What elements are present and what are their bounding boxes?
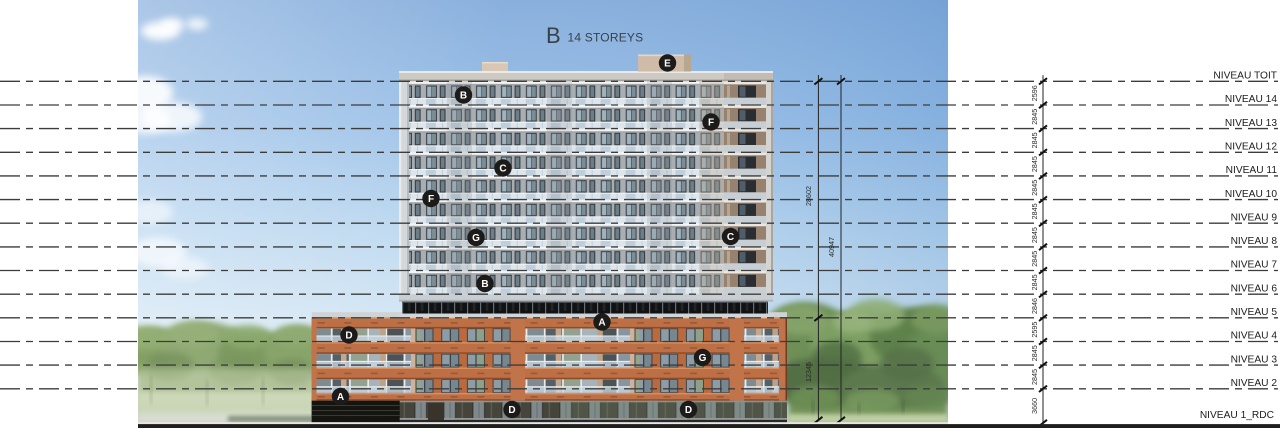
svg-text:G: G — [699, 353, 707, 364]
svg-text:NIVEAU 2: NIVEAU 2 — [1231, 378, 1278, 389]
svg-text:3660: 3660 — [1030, 398, 1039, 414]
svg-text:D: D — [685, 405, 692, 416]
svg-text:NIVEAU 6: NIVEAU 6 — [1231, 283, 1278, 294]
svg-text:NIVEAU 8: NIVEAU 8 — [1231, 236, 1278, 247]
svg-text:2596: 2596 — [1030, 85, 1039, 101]
svg-text:NIVEAU 3: NIVEAU 3 — [1231, 354, 1278, 365]
svg-text:2845: 2845 — [1030, 132, 1039, 148]
svg-text:2845: 2845 — [1030, 345, 1039, 361]
svg-text:40947: 40947 — [827, 237, 836, 257]
svg-text:2846: 2846 — [1030, 298, 1039, 314]
svg-text:NIVEAU 1_RDC: NIVEAU 1_RDC — [1200, 410, 1274, 421]
svg-text:B: B — [481, 279, 488, 290]
svg-text:D: D — [345, 330, 352, 341]
svg-text:NIVEAU 10: NIVEAU 10 — [1225, 189, 1277, 200]
svg-text:2845: 2845 — [1030, 274, 1039, 290]
svg-text:NIVEAU 4: NIVEAU 4 — [1231, 331, 1278, 342]
svg-text:F: F — [428, 194, 434, 205]
svg-text:C: C — [499, 163, 506, 174]
svg-text:NIVEAU 5: NIVEAU 5 — [1231, 307, 1278, 318]
svg-text:D: D — [508, 405, 515, 416]
svg-text:NIVEAU 12: NIVEAU 12 — [1225, 142, 1277, 153]
svg-text:2845: 2845 — [1030, 203, 1039, 219]
svg-text:NIVEAU 11: NIVEAU 11 — [1226, 165, 1278, 176]
svg-text:B: B — [546, 23, 561, 48]
svg-text:2845: 2845 — [1030, 251, 1039, 267]
svg-text:C: C — [727, 232, 734, 243]
svg-text:B: B — [460, 90, 467, 101]
svg-text:A: A — [337, 392, 344, 403]
svg-text:2845: 2845 — [1030, 227, 1039, 243]
svg-text:28602: 28602 — [804, 186, 813, 206]
svg-text:NIVEAU 13: NIVEAU 13 — [1225, 118, 1277, 129]
svg-text:2845: 2845 — [1030, 369, 1039, 385]
svg-text:F: F — [708, 117, 714, 128]
svg-text:NIVEAU 14: NIVEAU 14 — [1225, 94, 1277, 105]
svg-text:NIVEAU 9: NIVEAU 9 — [1231, 212, 1278, 223]
svg-text:E: E — [664, 58, 671, 69]
svg-text:NIVEAU TOIT: NIVEAU TOIT — [1213, 71, 1277, 82]
svg-text:2845: 2845 — [1030, 180, 1039, 196]
svg-text:2845: 2845 — [1030, 156, 1039, 172]
svg-text:A: A — [598, 317, 605, 328]
svg-text:NIVEAU 7: NIVEAU 7 — [1231, 260, 1278, 271]
svg-text:G: G — [472, 233, 480, 244]
svg-text:2595: 2595 — [1030, 322, 1039, 338]
svg-text:12345: 12345 — [804, 362, 813, 382]
svg-text:2845: 2845 — [1030, 109, 1039, 125]
svg-text:14 STOREYS: 14 STOREYS — [568, 31, 644, 45]
